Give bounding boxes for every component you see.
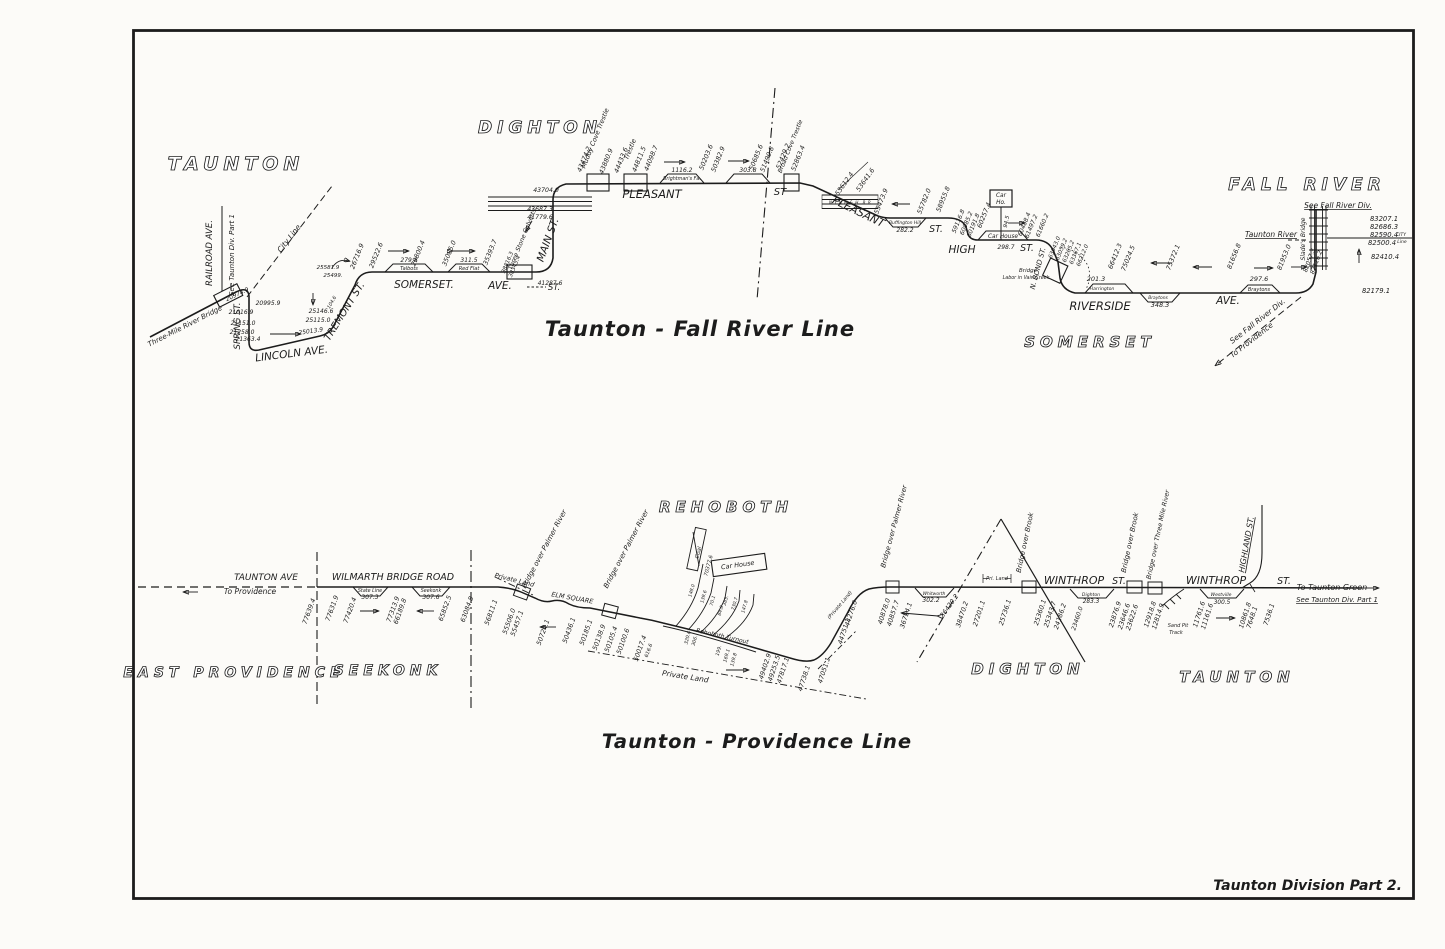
riverside-ave: RIVERSIDE xyxy=(1069,299,1131,313)
title-taunton-fall-river: Taunton - Fall River Line xyxy=(545,317,855,341)
m-35393-7: 35393.7 xyxy=(481,237,499,266)
lincoln-ave: LINCOLN AVE. xyxy=(255,344,329,365)
m-58955-8: 58955.8 xyxy=(934,185,951,213)
m-82410-4: 82410.4 xyxy=(1371,253,1399,261)
m-53641-6: 53641.6 xyxy=(854,167,876,194)
siding-dighton-num: 283.3 xyxy=(1083,599,1100,605)
winthrop-st-2b: ST. xyxy=(1277,576,1291,587)
siding-graytons: Braytons xyxy=(1248,287,1271,293)
town-rehoboth: REHOBOTH xyxy=(659,498,793,516)
m-63084-8: 63084.8 xyxy=(459,595,476,623)
triangle-right-leg xyxy=(1001,519,1085,662)
m-77639-4: 77639.4 xyxy=(301,597,318,625)
title-taunton-providence: Taunton - Providence Line xyxy=(602,730,912,753)
slades-bridge: Slade's Bridge xyxy=(1300,217,1307,260)
m-139-8: 139.8 xyxy=(729,652,738,667)
town-line-dash-top xyxy=(757,88,775,300)
m-25115-0: 25115.0 xyxy=(306,317,331,324)
m-50436-1: 50436.1 xyxy=(561,616,578,644)
m-29800-4: 29800.4 xyxy=(409,239,426,267)
town-somerset: SOMERSET xyxy=(1024,333,1156,351)
m-21258-0: 21258.0 xyxy=(230,329,255,336)
nynhh-rr: N.Y.N.H.& H. R.R. xyxy=(829,200,873,205)
bridge-brook-1: Bridge over Brook xyxy=(1015,511,1036,574)
winthrop-st-1b: ST. xyxy=(1112,576,1126,587)
m-20995-9: 20995.9 xyxy=(256,300,281,307)
sheet-title: Taunton Division Part 2. xyxy=(1213,878,1402,894)
siding-brightmans-num: 1116.2 xyxy=(672,167,693,174)
car-ho-b: Ho. xyxy=(996,200,1006,206)
m-83207-1: 83207.1 xyxy=(1370,215,1398,223)
m-147-8: 147.8 xyxy=(740,600,749,614)
m-50185-1: 50185.1 xyxy=(578,618,595,646)
town-taunton: TAUNTON xyxy=(168,153,305,175)
siding-buffington-num: 282.2 xyxy=(896,227,913,234)
m-25581-9: 25581.9 xyxy=(317,265,340,271)
m-41287-6: 41287.6 xyxy=(538,280,563,287)
m-47051-1: 47051.1 xyxy=(816,656,832,684)
num-94-5: 94.5 xyxy=(1003,215,1012,229)
elm-square: ELM SQUARE xyxy=(551,590,595,605)
siding-seekonk-num: 307.6 xyxy=(422,594,439,601)
siding-car-house-num: 298.7 xyxy=(997,244,1014,251)
map-canvas: Taunton - Fall River Line Taunton - Prov… xyxy=(0,0,1445,949)
town-dighton-b: DIGHTON xyxy=(971,660,1084,678)
city-line-right-b: Line xyxy=(1397,239,1407,245)
car-house-spurs xyxy=(676,532,754,639)
somerset-ave: SOMERSET. xyxy=(394,279,454,291)
m-47738-1: 47738.1 xyxy=(796,664,812,692)
m-104-6: 104.6 xyxy=(326,295,338,310)
bridge-palmer-1: Bridge over Palmer River xyxy=(520,507,569,589)
see-taunton-div-part1-top: See Taunton Div. Part 1 xyxy=(228,214,236,296)
m-29522-6: 29522.6 xyxy=(367,241,384,269)
bridge-three-mile-b: Bridge over Three Mile River xyxy=(1145,489,1172,580)
m-169-1: 169.1 xyxy=(722,648,731,663)
bridge-palmer-2: Bridge over Palmer River xyxy=(602,507,651,589)
m-27201-1: 27201.1 xyxy=(971,599,987,627)
car-house-bottom: Car House xyxy=(721,559,755,572)
sheet-border xyxy=(134,31,1414,899)
triangle-left-leg xyxy=(917,519,1001,662)
m-21363-4: 21363.4 xyxy=(236,336,261,343)
siding-state-line-num: 307.3 xyxy=(361,594,378,601)
siding-car-house: Car House xyxy=(988,234,1018,240)
m-306: 306. xyxy=(691,635,700,647)
town-dighton: DIGHTON xyxy=(478,118,602,138)
m-82686-3: 82686.3 xyxy=(1370,223,1398,231)
siding-harrington: Harrington xyxy=(1090,286,1115,292)
siding-harrington-num: 201.3 xyxy=(1087,275,1106,283)
siding-red-flat-num: 311.5 xyxy=(460,257,477,264)
labels-layer: TAUNTONDIGHTONSOMERSETFALL RIVERSee Taun… xyxy=(123,107,1407,692)
see-taunton-div-part1-bottom: See Taunton Div. Part 1 xyxy=(1296,596,1378,604)
wilmarth-bridge-road: WILMARTH BRIDGE ROAD xyxy=(332,572,454,583)
siding-whitworth-num: 302.2 xyxy=(922,597,939,604)
m-56811-1: 56811.1 xyxy=(483,598,500,626)
m-7536-1: 7536.1 xyxy=(1262,602,1277,626)
city-line-top: City Line xyxy=(275,222,302,254)
m-320-6: 320.6 xyxy=(683,630,692,645)
to-providence-bottom: To Providence xyxy=(224,587,277,596)
m-50724-1: 50724.1 xyxy=(535,618,552,646)
m-199: 199. xyxy=(715,645,724,657)
car-ho-a: Car xyxy=(996,193,1007,199)
main-st: MAIN ST. xyxy=(535,216,562,263)
town-seekonk: SEEKONK xyxy=(334,663,443,679)
pri-land-bracket: Pri. Land xyxy=(986,576,1009,582)
m-55782-0: 55782.0 xyxy=(915,187,932,215)
m-43704-0: 43704.0 xyxy=(533,187,559,194)
bridge-palmer-3: Bridge over Palmer River xyxy=(879,483,909,568)
town-east-providence: EAST PROVIDENCE xyxy=(123,665,344,681)
winthrop-st-1: WINTHROP xyxy=(1044,574,1105,587)
pleasant-st-st: ST xyxy=(774,187,787,198)
m-77631-9: 77631.9 xyxy=(324,594,341,622)
see-fall-river-div-top: See Fall River Div. xyxy=(1304,201,1372,210)
m-36714-1: 36714.1 xyxy=(898,601,914,629)
bridge-labor-b: Labor in Vain Creek xyxy=(1003,275,1050,281)
m-35085-0: 35085.0 xyxy=(440,239,457,267)
siding-graytons-num: 297.6 xyxy=(1250,275,1269,283)
pleasant-st: PLEASANT xyxy=(622,187,682,201)
high-st-st: ST. xyxy=(1020,243,1034,254)
siding-red-flat: Red Flat xyxy=(459,266,481,272)
m-26716-9: 26716.9 xyxy=(348,242,365,270)
sand-pit-a: Sand Pit xyxy=(1168,623,1190,629)
highland-st: HIGHLAND ST. xyxy=(1237,516,1256,573)
sand-pit-b: Track xyxy=(1169,630,1184,636)
m-21016-9: 21016.9 xyxy=(229,309,254,316)
siding-buffington: Buffington Hill xyxy=(889,220,922,226)
town-fall-river: FALL RIVER xyxy=(1228,175,1385,195)
m-25013-9: 25013.9 xyxy=(298,326,324,336)
m-75372-1: 75372.1 xyxy=(1164,243,1181,271)
m-82500-4: 82500.4 xyxy=(1368,239,1396,247)
siding-westville-num: 300.5 xyxy=(1214,600,1231,606)
m-81953-0: 81953.0 xyxy=(1275,243,1292,271)
m-77420-4: 77420.4 xyxy=(342,596,359,624)
bridge-labor-a: Bridge xyxy=(1019,268,1038,274)
m-82179-1: 82179.1 xyxy=(1362,287,1390,295)
muddy-cove-trestle-box xyxy=(587,174,609,191)
m-55473-9: 55473.9 xyxy=(872,187,889,215)
taunton-ave: TAUNTON AVE xyxy=(234,573,298,583)
siding-348-3: 348.3 xyxy=(1151,301,1170,309)
to-taunton-green: To Taunton Green xyxy=(1297,583,1367,592)
m-82590-4: 82590.4 xyxy=(1370,231,1398,239)
drawing-sheet: Taunton - Fall River Line Taunton - Prov… xyxy=(0,0,1445,949)
m-84-8: 84.8 xyxy=(717,605,725,617)
m-41779-6: 41779.6 xyxy=(527,214,553,221)
three-mile-river-bridge: Three-Mile River Bridge xyxy=(147,304,224,349)
m-25499: 25499. xyxy=(323,273,342,279)
town-taunton-b: TAUNTON xyxy=(1179,668,1294,686)
bridge-brook-2: Bridge over Brook xyxy=(1120,511,1141,574)
somerset-ave-2: AVE. xyxy=(487,280,512,292)
m-53612-4: 53612.4 xyxy=(833,171,855,198)
taunton-river: Taunton River xyxy=(1245,230,1298,239)
sidings-bottom xyxy=(353,587,1244,598)
m-383: 383. xyxy=(722,595,730,606)
siding-westville: Westville xyxy=(1211,592,1232,598)
m-25736-1: 25736.1 xyxy=(997,598,1013,626)
m-81656-8: 81656.8 xyxy=(1225,242,1242,270)
m-43687-3: 43687.3 xyxy=(527,206,553,213)
pleasant-st-2-st: ST. xyxy=(929,224,943,235)
m-23460-0: 23460.0 xyxy=(1070,605,1084,631)
riverside-ave-2: AVE. xyxy=(1215,295,1240,307)
m-21151-0: 21151.0 xyxy=(231,320,256,327)
winthrop-st-2: WINTHROP xyxy=(1186,574,1247,587)
railroad-ave: RAILROAD AVE. xyxy=(205,220,215,286)
m-38470-2: 38470.2 xyxy=(954,600,970,628)
high-st: HIGH xyxy=(948,244,975,256)
siding-dighton: Dighton xyxy=(1082,592,1100,598)
siding-brightmans: Brightman's Fa. xyxy=(663,176,701,182)
